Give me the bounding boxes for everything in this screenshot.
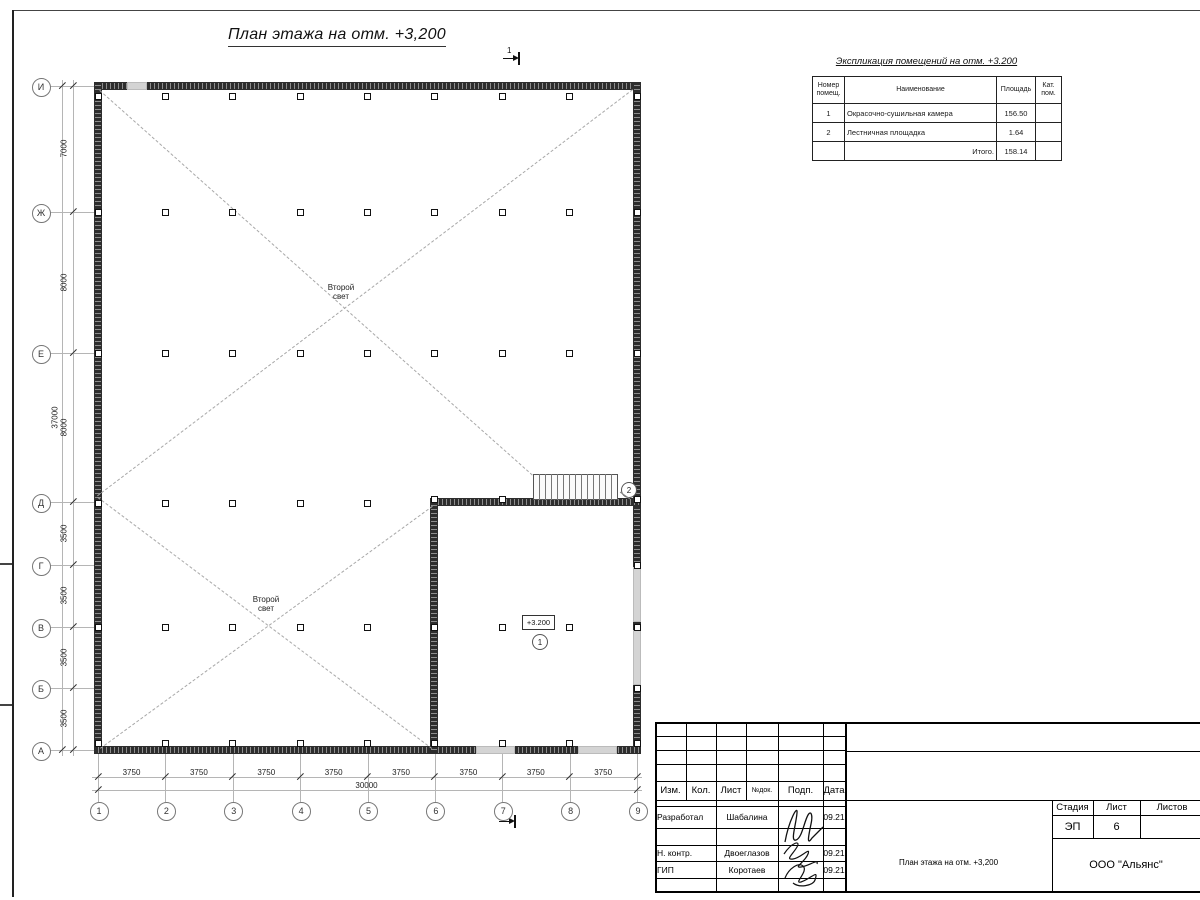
col-header-category: Кат. пом. xyxy=(1036,77,1062,104)
column-marker xyxy=(162,740,169,747)
frame-left-line xyxy=(12,10,14,897)
section-mark-bar xyxy=(514,815,516,828)
stage-value: ЭП xyxy=(1052,815,1093,838)
company-name: ООО "Альянс" xyxy=(1052,838,1200,891)
dim-line xyxy=(73,80,74,756)
column-marker xyxy=(95,500,102,507)
column-marker xyxy=(364,350,371,357)
wall-opening xyxy=(634,631,640,684)
axis-bubble-1: 1 xyxy=(90,802,109,821)
column-marker xyxy=(162,624,169,631)
column-marker xyxy=(162,500,169,507)
person-name: Коротаев xyxy=(716,861,778,878)
axis-bubble-Б: Б xyxy=(32,680,51,699)
axis-bubble-4: 4 xyxy=(292,802,311,821)
stair-tread xyxy=(593,474,594,500)
room-name-cell: Окрасочно-сушильная камера xyxy=(845,104,997,123)
stair-tread xyxy=(575,474,576,500)
elevation-tag: +3.200 xyxy=(522,615,555,630)
section-mark-bar xyxy=(518,52,520,65)
wall-opening xyxy=(128,83,146,89)
col-list: Лист xyxy=(716,781,746,800)
column-marker xyxy=(499,496,506,503)
column-marker xyxy=(229,93,236,100)
col-kol: Кол. xyxy=(686,781,716,800)
axis-bubble-2: 2 xyxy=(157,802,176,821)
dim-label: 3750 xyxy=(512,768,559,777)
column-marker xyxy=(431,209,438,216)
col-izm: Изм. xyxy=(655,781,686,800)
stair-tread xyxy=(569,474,570,500)
axis-bubble-7: 7 xyxy=(494,802,513,821)
axis-bubble-8: 8 xyxy=(561,802,580,821)
dim-total-label: 37000 xyxy=(51,402,60,434)
stage-label: Стадия xyxy=(1052,800,1093,815)
role-label: Разработал xyxy=(657,806,716,828)
column-marker xyxy=(297,350,304,357)
explication-block: Экспликация помещений на отм. +3.200 Ном… xyxy=(812,56,1041,161)
dim-label: 3750 xyxy=(108,768,155,777)
room-area-cell: 156.50 xyxy=(997,104,1036,123)
room-number-cell: 2 xyxy=(813,123,845,142)
column-marker xyxy=(229,740,236,747)
column-marker xyxy=(297,624,304,631)
dim-label: 3500 xyxy=(60,582,69,610)
dim-label: 3500 xyxy=(60,643,69,671)
empty-cell xyxy=(1036,142,1062,161)
room-name-cell: Лестничная площадка xyxy=(845,123,997,142)
column-marker xyxy=(431,740,438,747)
empty-cell xyxy=(813,142,845,161)
column-marker xyxy=(634,624,641,631)
fold-mark xyxy=(0,704,12,706)
col-header-name: Наименование xyxy=(845,77,997,104)
person-name: Шабалина xyxy=(716,806,778,828)
explication-table: Номер помещ. Наименование Площадь Кат. п… xyxy=(812,76,1062,161)
section-mark-label: 1 xyxy=(507,46,511,55)
column-marker xyxy=(95,624,102,631)
stair-tread xyxy=(545,474,546,500)
stair-tread xyxy=(581,474,582,500)
column-marker xyxy=(297,740,304,747)
room-category-cell xyxy=(1036,123,1062,142)
axis-bubble-Г: Г xyxy=(32,557,51,576)
wall-opening xyxy=(634,568,640,621)
column-marker xyxy=(229,209,236,216)
role-label: Н. контр. xyxy=(657,845,716,861)
axis-bubble-И: И xyxy=(32,78,51,97)
col-header-area: Площадь xyxy=(997,77,1036,104)
axis-bubble-5: 5 xyxy=(359,802,378,821)
void-label: Второй свет xyxy=(311,283,371,301)
dim-label: 3500 xyxy=(60,705,69,733)
void-cross-line xyxy=(97,497,432,749)
wall-left xyxy=(95,83,101,753)
total-label: Итого. xyxy=(845,142,997,161)
frame-top-line xyxy=(12,10,1200,11)
sheets-label: Листов xyxy=(1140,800,1200,815)
column-marker xyxy=(364,624,371,631)
column-marker xyxy=(95,740,102,747)
column-marker xyxy=(431,93,438,100)
total-area: 158.14 xyxy=(997,142,1036,161)
axis-bubble-9: 9 xyxy=(629,802,648,821)
column-marker xyxy=(566,93,573,100)
column-marker xyxy=(431,624,438,631)
column-marker xyxy=(364,209,371,216)
column-marker xyxy=(229,500,236,507)
col-header-number: Номер помещ. xyxy=(813,77,845,104)
column-marker xyxy=(364,500,371,507)
axis-bubble-Е: Е xyxy=(32,345,51,364)
void-label: Второй свет xyxy=(236,595,296,613)
role-label: ГИП xyxy=(657,861,716,878)
page-title: План этажа на отм. +3,200 xyxy=(228,26,446,47)
stair-tread xyxy=(599,474,600,500)
wall-opening xyxy=(579,747,616,753)
dim-label: 8000 xyxy=(60,268,69,296)
fold-mark xyxy=(0,563,12,565)
dim-label: 3750 xyxy=(580,768,627,777)
column-marker xyxy=(566,350,573,357)
column-marker xyxy=(297,500,304,507)
column-marker xyxy=(634,93,641,100)
explication-header-row: Номер помещ. Наименование Площадь Кат. п… xyxy=(813,77,1062,104)
column-marker xyxy=(566,209,573,216)
sheet-number: 6 xyxy=(1093,815,1140,838)
stair-tread xyxy=(557,474,558,500)
table-row: 2 Лестничная площадка 1.64 xyxy=(813,123,1062,142)
column-marker xyxy=(499,624,506,631)
room-number-cell: 1 xyxy=(813,104,845,123)
stair-tread xyxy=(605,474,606,500)
column-marker xyxy=(297,209,304,216)
doc-name: План этажа на отм. +3,200 xyxy=(845,842,1052,882)
room-category-cell xyxy=(1036,104,1062,123)
column-marker xyxy=(95,93,102,100)
column-marker xyxy=(566,740,573,747)
column-marker xyxy=(229,350,236,357)
column-marker xyxy=(499,740,506,747)
column-marker xyxy=(162,209,169,216)
wall-bottom xyxy=(95,747,640,753)
col-podp: Подп. xyxy=(778,781,823,800)
drawing-sheet: План этажа на отм. +3,200 1 1 7000800080… xyxy=(0,0,1200,900)
col-data: Дата xyxy=(823,781,845,800)
axis-bubble-Ж: Ж xyxy=(32,204,51,223)
column-marker xyxy=(634,350,641,357)
column-marker xyxy=(634,209,641,216)
explication-title: Экспликация помещений на отм. +3.200 xyxy=(812,56,1041,67)
column-marker xyxy=(566,624,573,631)
dim-label: 3750 xyxy=(445,768,492,777)
column-marker xyxy=(431,496,438,503)
axis-bubble-6: 6 xyxy=(426,802,445,821)
room-area-cell: 1.64 xyxy=(997,123,1036,142)
column-marker xyxy=(634,740,641,747)
table-row: 1 Окрасочно-сушильная камера 156.50 xyxy=(813,104,1062,123)
column-marker xyxy=(162,350,169,357)
stair-tread xyxy=(539,474,540,500)
room-number-1: 1 xyxy=(532,634,548,650)
column-marker xyxy=(634,562,641,569)
dim-label: 3750 xyxy=(243,768,290,777)
column-marker xyxy=(364,93,371,100)
total-row: Итого. 158.14 xyxy=(813,142,1062,161)
title-block: Изм. Кол. Лист №док. Подп. Дата Разработ… xyxy=(655,722,1200,893)
column-marker xyxy=(162,93,169,100)
stair-tread xyxy=(551,474,552,500)
column-marker xyxy=(499,93,506,100)
dim-label: 3500 xyxy=(60,519,69,547)
column-marker xyxy=(297,93,304,100)
stair-tread xyxy=(563,474,564,500)
column-marker xyxy=(364,740,371,747)
axis-bubble-В: В xyxy=(32,619,51,638)
column-marker xyxy=(499,209,506,216)
dim-label: 3750 xyxy=(310,768,357,777)
column-marker xyxy=(634,496,641,503)
column-marker xyxy=(634,685,641,692)
column-marker xyxy=(95,350,102,357)
dim-label: 7000 xyxy=(60,135,69,163)
dim-label: 3750 xyxy=(378,768,425,777)
axis-bubble-Д: Д xyxy=(32,494,51,513)
dim-label: 3750 xyxy=(175,768,222,777)
wall-opening xyxy=(477,747,514,753)
dim-total-label: 30000 xyxy=(344,781,389,790)
sheet-label: Лист xyxy=(1093,800,1140,815)
dim-line xyxy=(92,790,642,791)
wall-top xyxy=(95,83,640,89)
column-marker xyxy=(95,209,102,216)
person-name: Двоеглазов xyxy=(716,845,778,861)
signature xyxy=(779,838,827,890)
section-mark-top: 1 xyxy=(501,46,525,72)
column-marker xyxy=(229,624,236,631)
column-marker xyxy=(431,350,438,357)
dim-label: 8000 xyxy=(60,413,69,441)
stair-tread xyxy=(611,474,612,500)
axis-bubble-А: А xyxy=(32,742,51,761)
stair-tread xyxy=(587,474,588,500)
col-ndoc: №док. xyxy=(746,781,778,800)
axis-bubble-3: 3 xyxy=(224,802,243,821)
column-marker xyxy=(499,350,506,357)
